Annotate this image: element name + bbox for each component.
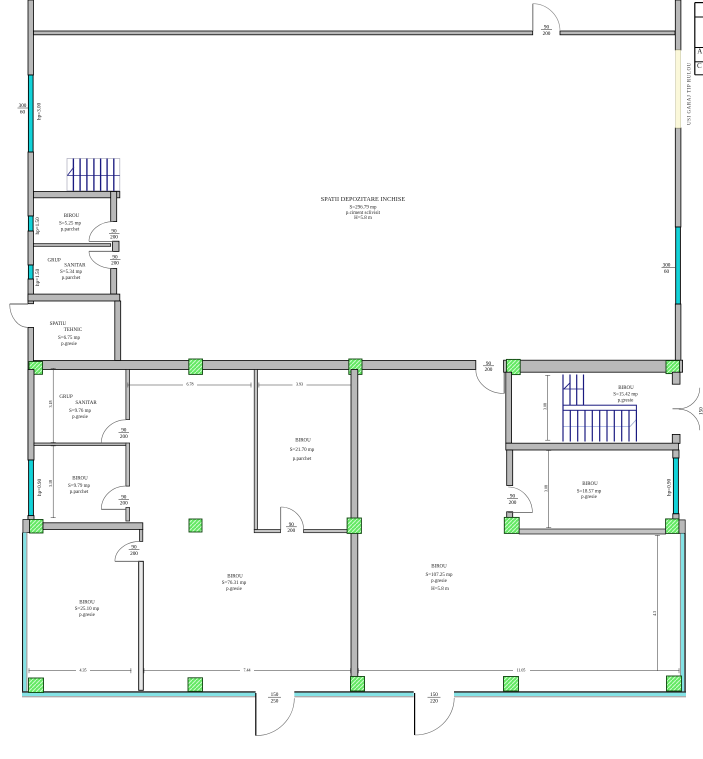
svg-text:SPATII DEPOZITARE INCHISE: SPATII DEPOZITARE INCHISE [321,196,406,203]
svg-text:60: 60 [20,110,26,116]
svg-text:GRUP: GRUP [48,259,62,264]
svg-text:60: 60 [664,269,670,275]
svg-text:220: 220 [430,698,438,704]
svg-text:p.parchet: p.parchet [61,227,80,232]
svg-text:3.08: 3.08 [544,485,549,492]
svg-text:6.78: 6.78 [187,381,194,386]
svg-text:200: 200 [111,261,119,267]
svg-text:S=21.70 mp: S=21.70 mp [290,448,315,453]
svg-text:BIROU: BIROU [431,564,447,569]
svg-text:150: 150 [699,407,703,415]
svg-text:BIROU: BIROU [618,386,634,391]
svg-text:3.18: 3.18 [48,401,53,408]
svg-text:p.parchet: p.parchet [62,276,81,281]
svg-text:p.parchet: p.parchet [70,490,89,495]
svg-text:SANITAR: SANITAR [64,264,86,269]
svg-text:p.gresie: p.gresie [431,579,447,584]
svg-text:S=9.76 mp: S=9.76 mp [69,409,91,414]
svg-text:S=25.10 mp: S=25.10 mp [75,607,100,612]
svg-text:3.93: 3.93 [296,381,303,386]
svg-text:hp=0.90: hp=0.90 [37,478,43,496]
svg-text:3.08: 3.08 [543,403,548,410]
svg-text:200: 200 [130,551,138,557]
svg-text:p.parchet: p.parchet [293,457,312,462]
svg-text:S=18.57 mp: S=18.57 mp [577,489,602,494]
svg-text:TEHNIC: TEHNIC [64,328,83,333]
svg-text:p.gresie: p.gresie [61,342,77,347]
svg-text:p.gresie: p.gresie [618,398,634,403]
svg-text:p.gresie: p.gresie [226,587,242,592]
svg-text:BIROU: BIROU [295,438,311,443]
svg-text:p.gresie: p.gresie [79,613,95,618]
svg-text:200: 200 [485,367,493,373]
svg-text:S=9.79 mp: S=9.79 mp [68,484,90,489]
svg-text:250: 250 [271,698,279,704]
svg-text:H=5.8 m: H=5.8 m [354,216,372,221]
svg-text:H=5.8 m: H=5.8 m [431,587,449,592]
svg-text:p.gresie: p.gresie [72,415,88,420]
svg-text:hp=0.90: hp=0.90 [666,478,672,496]
svg-text:SPATIU: SPATIU [50,322,67,327]
svg-text:BIROU: BIROU [227,574,243,579]
svg-text:S=5.25 mp: S=5.25 mp [59,221,81,226]
svg-text:200: 200 [543,31,551,37]
svg-text:200: 200 [509,500,517,506]
svg-text:BIROU: BIROU [582,482,598,487]
svg-text:S=15.42 mp: S=15.42 mp [613,392,638,397]
svg-text:200: 200 [120,434,128,440]
svg-text:USI GARAJ TIP RULOU: USI GARAJ TIP RULOU [688,62,693,125]
svg-text:S=5.34 mp: S=5.34 mp [60,270,82,275]
svg-text:3.18: 3.18 [48,480,53,487]
svg-text:4.3: 4.3 [652,611,657,616]
svg-text:hp=1.50: hp=1.50 [35,217,41,235]
svg-text:C: C [697,62,702,70]
svg-text:200: 200 [287,528,295,534]
svg-text:S=107.25 mp: S=107.25 mp [426,573,453,578]
svg-text:GRUP: GRUP [59,395,73,400]
svg-text:hp=1.50: hp=1.50 [35,268,41,286]
svg-text:BIROU: BIROU [72,476,88,481]
svg-text:S=296.79 mp: S=296.79 mp [350,205,377,210]
svg-text:hp=3.00: hp=3.00 [37,102,43,120]
svg-text:S=76.31 mp: S=76.31 mp [222,581,247,586]
svg-text:200: 200 [110,235,118,241]
svg-text:A: A [697,48,702,56]
svg-text:SANITAR: SANITAR [75,401,97,406]
svg-text:11.05: 11.05 [517,668,526,673]
svg-text:4.35: 4.35 [80,668,87,673]
svg-text:S=6.75 mp: S=6.75 mp [58,336,80,341]
svg-text:p.gresie: p.gresie [581,495,597,500]
svg-text:200: 200 [120,501,128,507]
svg-text:BIROU: BIROU [64,214,80,219]
svg-text:7.44: 7.44 [244,668,251,673]
svg-text:BIROU: BIROU [79,600,95,605]
